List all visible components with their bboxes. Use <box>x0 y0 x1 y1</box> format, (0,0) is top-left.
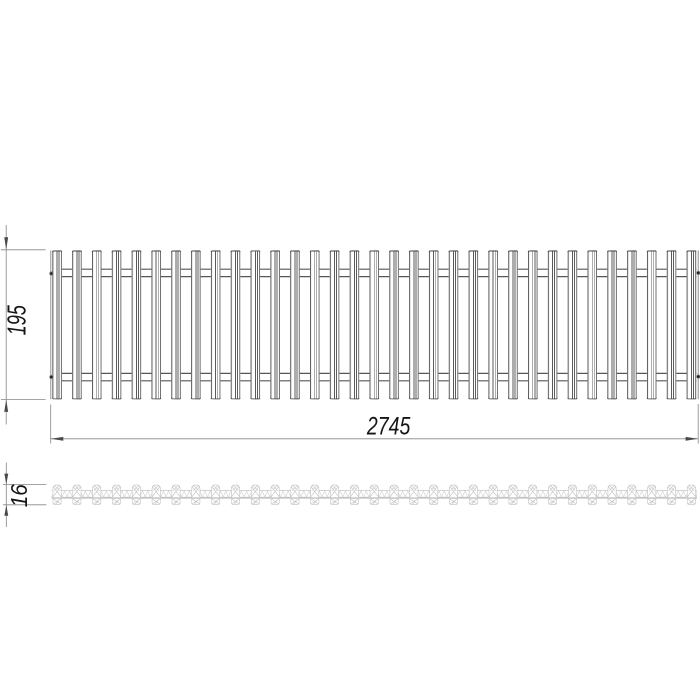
svg-text:2745: 2745 <box>366 412 411 440</box>
svg-text:195: 195 <box>2 305 31 336</box>
svg-text:16: 16 <box>6 483 32 507</box>
